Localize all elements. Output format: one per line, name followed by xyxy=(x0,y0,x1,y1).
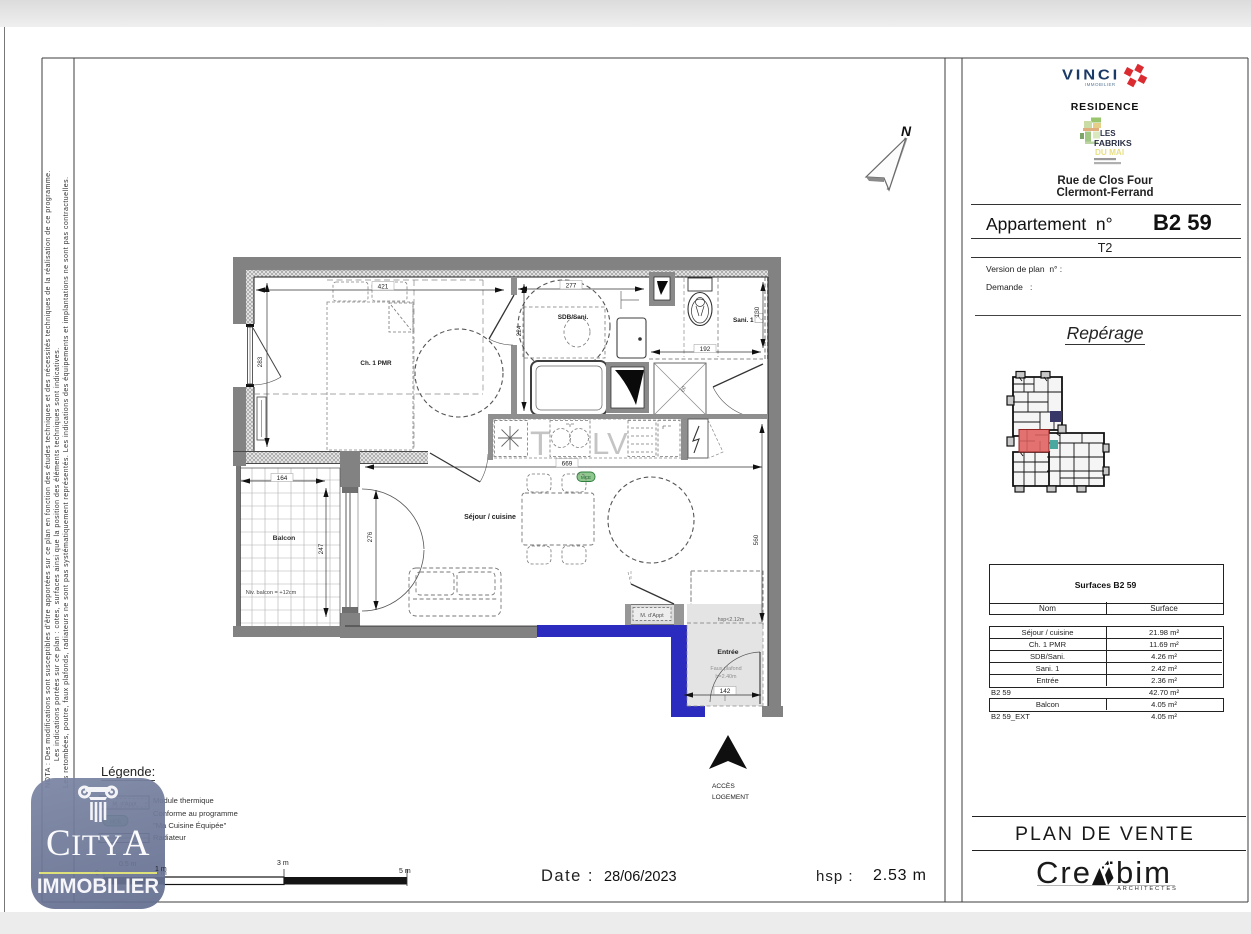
svg-text:DU MAI: DU MAI xyxy=(1095,148,1124,157)
svg-text:Sani. 1: Sani. 1 xyxy=(733,317,754,324)
svg-text:Ch. 1 PMR: Ch. 1 PMR xyxy=(360,360,392,367)
svg-text:283: 283 xyxy=(257,356,264,367)
svg-text:130: 130 xyxy=(754,306,761,317)
svg-text:142: 142 xyxy=(720,688,731,695)
svg-text:247: 247 xyxy=(318,543,325,554)
svg-text:Balcon: Balcon xyxy=(273,535,296,542)
svg-text:T: T xyxy=(530,425,551,463)
svg-text:Faux plafond: Faux plafond xyxy=(710,666,741,672)
svg-text:Séjour / cuisine: Séjour / cuisine xyxy=(464,514,516,521)
svg-text:ACCÈS: ACCÈS xyxy=(712,781,735,790)
svg-text:LV: LV xyxy=(592,426,628,461)
svg-text:LOGEMENT: LOGEMENT xyxy=(712,794,749,801)
svg-text:FABRIKS: FABRIKS xyxy=(1094,138,1132,148)
svg-text:M. d'Appt: M. d'Appt xyxy=(640,613,664,619)
svg-text:192: 192 xyxy=(700,346,711,353)
svg-text:hsp<2.12m: hsp<2.12m xyxy=(718,617,745,623)
svg-text:LES: LES xyxy=(1100,129,1116,138)
svg-text:560: 560 xyxy=(753,534,760,545)
svg-text:N: N xyxy=(901,123,912,139)
svg-text:Entrée: Entrée xyxy=(717,649,738,656)
svg-text:224: 224 xyxy=(516,325,523,336)
svg-text:277: 277 xyxy=(566,283,577,290)
svg-text:5 m: 5 m xyxy=(399,868,411,875)
svg-text:421: 421 xyxy=(378,284,389,291)
svg-text:669: 669 xyxy=(562,461,573,468)
svg-text:SDB/Sani.: SDB/Sani. xyxy=(558,314,589,321)
svg-text:Niv. balcon = +12cm: Niv. balcon = +12cm xyxy=(246,590,297,596)
svg-text:164: 164 xyxy=(277,475,288,482)
svg-text:276: 276 xyxy=(367,531,374,542)
svg-text:3 m: 3 m xyxy=(277,860,289,867)
